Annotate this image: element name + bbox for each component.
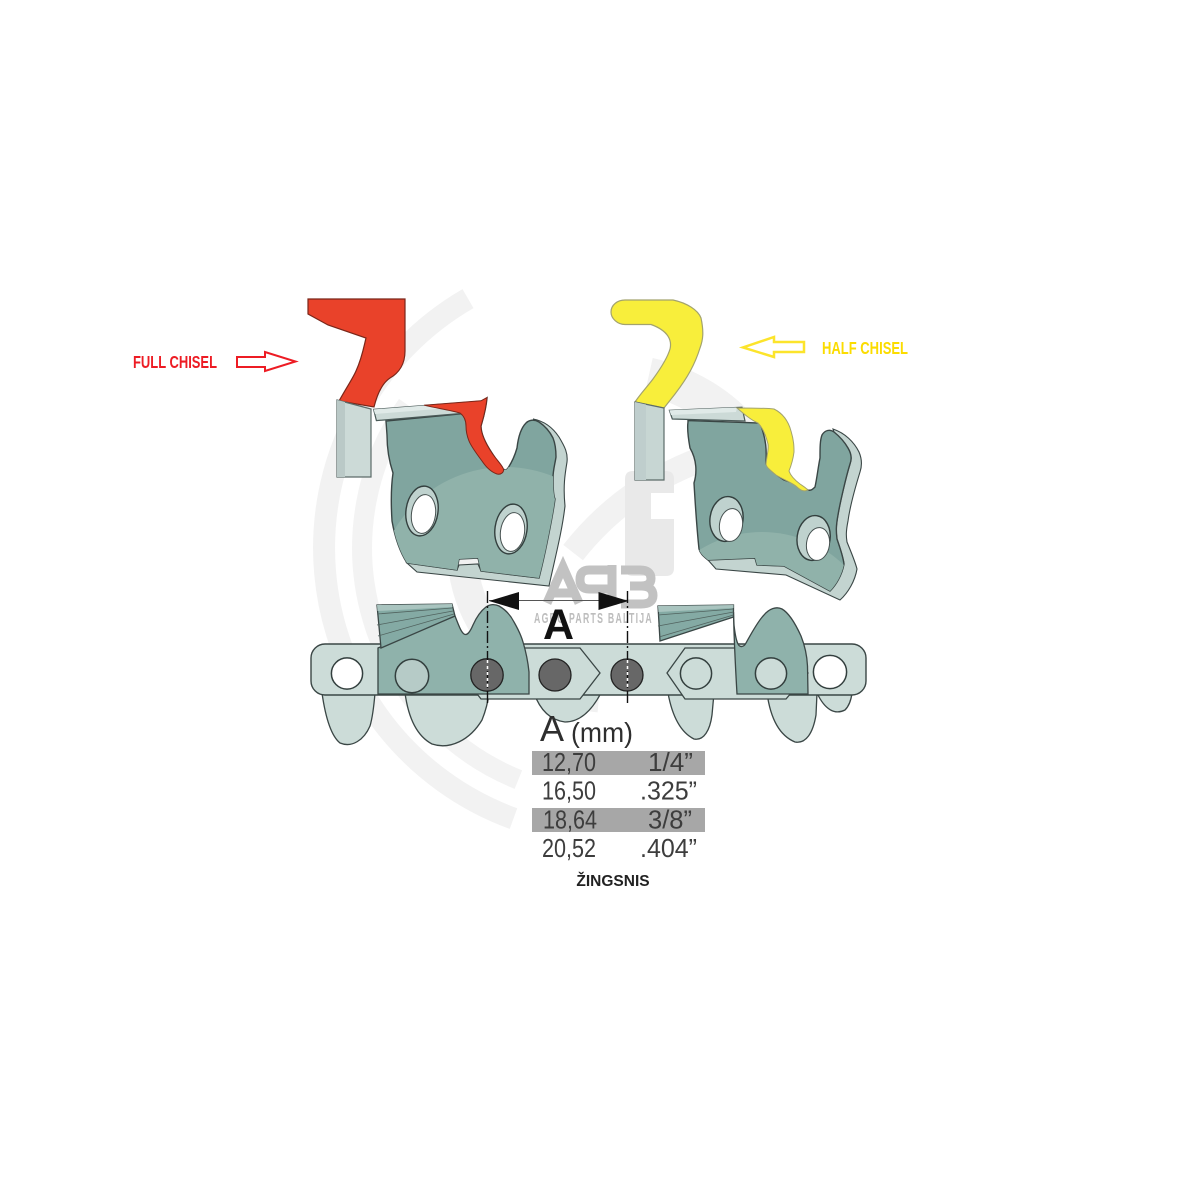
svg-text:.404”: .404” [640,833,697,863]
svg-text:12,70: 12,70 [542,747,596,777]
svg-text:1/4”: 1/4” [648,747,693,777]
svg-text:A: A [543,601,574,649]
svg-text:FULL CHISEL: FULL CHISEL [133,352,217,372]
svg-text:(mm): (mm) [571,717,633,748]
svg-text:20,52: 20,52 [542,833,596,863]
svg-text:3/8”: 3/8” [648,805,692,835]
svg-text:18,64: 18,64 [543,805,597,835]
svg-text:ŽINGSNIS: ŽINGSNIS [576,872,649,890]
svg-text:HALF CHISEL: HALF CHISEL [822,338,908,358]
svg-text:.325”: .325” [640,776,697,806]
svg-text:16,50: 16,50 [542,776,596,806]
svg-text:A: A [540,708,564,749]
